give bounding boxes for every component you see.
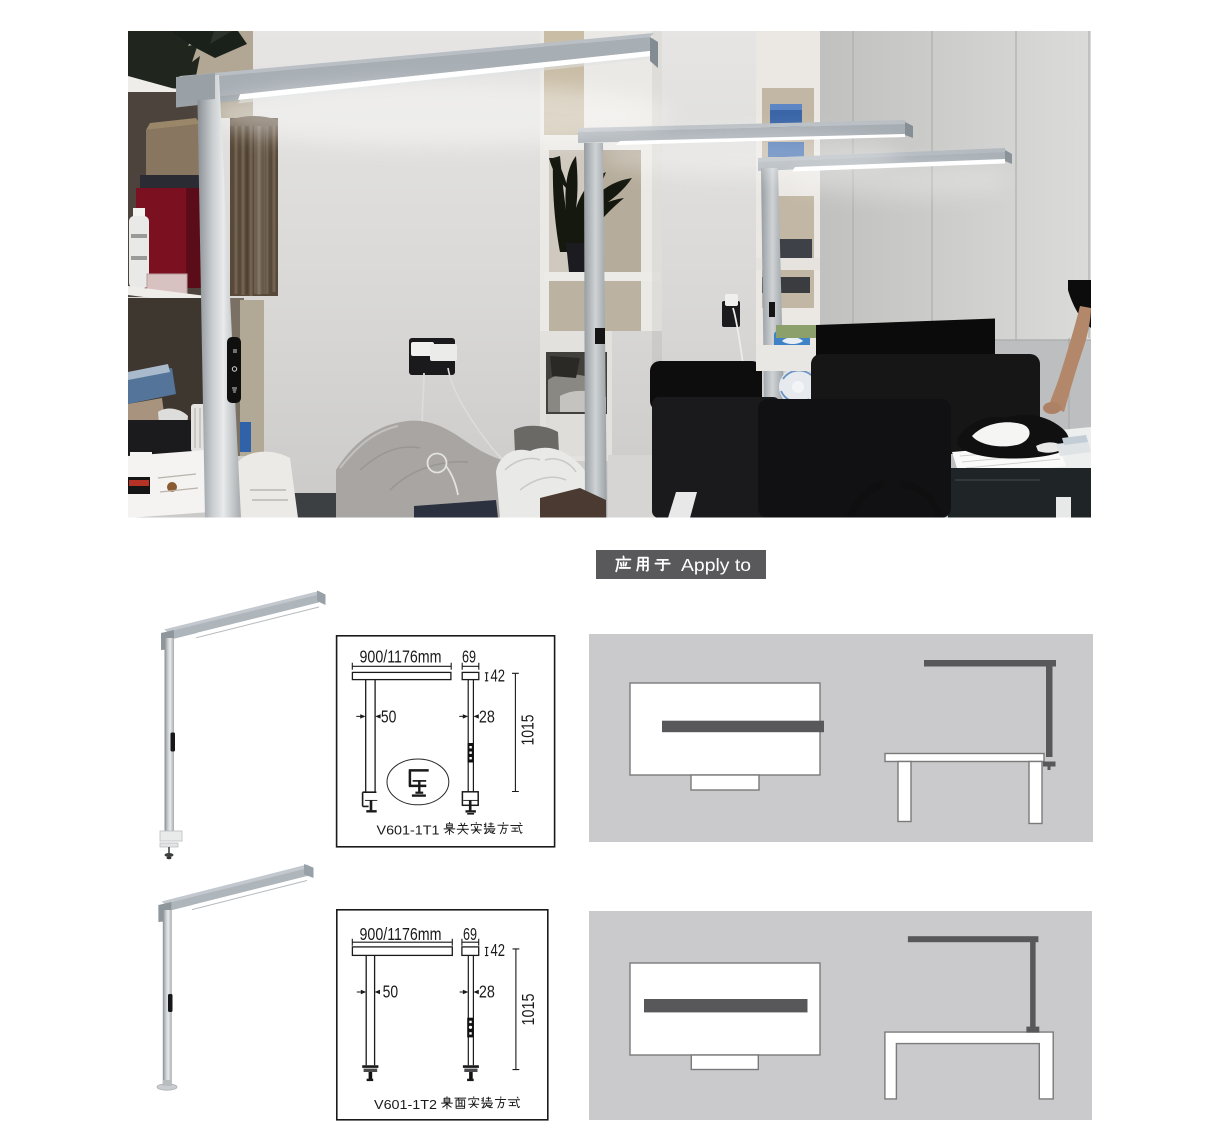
svg-text:28: 28: [479, 982, 495, 1002]
svg-text:900/1176mm: 900/1176mm: [360, 924, 442, 944]
svg-text:V601-1T1: V601-1T1: [377, 823, 440, 838]
svg-text:50: 50: [381, 706, 397, 726]
svg-text:900/1176mm: 900/1176mm: [360, 647, 442, 667]
svg-text:1015: 1015: [518, 715, 538, 746]
svg-text:42: 42: [491, 665, 506, 685]
svg-text:Apply to: Apply to: [681, 555, 751, 575]
svg-text:1015: 1015: [518, 994, 538, 1026]
svg-text:42: 42: [491, 940, 506, 960]
svg-text:69: 69: [462, 647, 476, 667]
svg-text:V601-1T2: V601-1T2: [374, 1097, 437, 1112]
svg-text:69: 69: [463, 924, 477, 944]
svg-text:50: 50: [383, 982, 399, 1002]
svg-text:28: 28: [479, 706, 495, 726]
